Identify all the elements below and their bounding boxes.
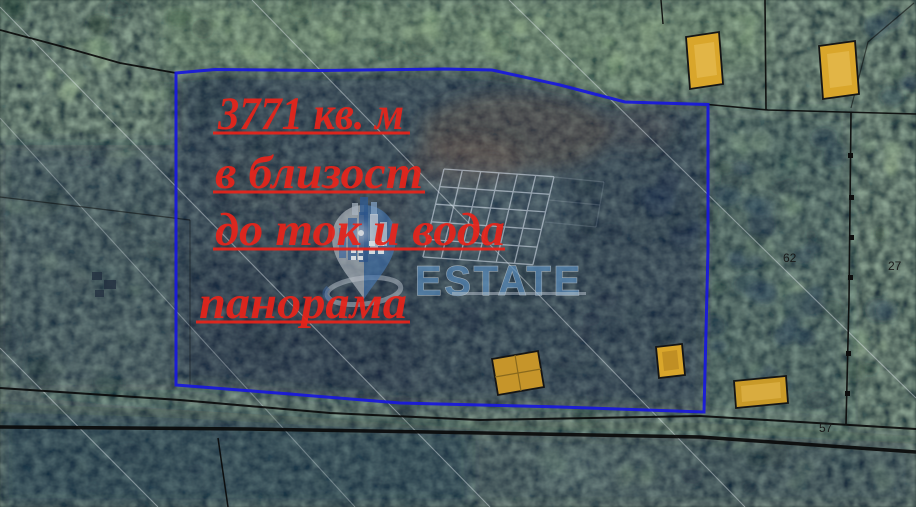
svg-text:ESTATE: ESTATE (415, 257, 583, 304)
svg-text:57: 57 (819, 421, 833, 435)
svg-text:27: 27 (888, 259, 902, 273)
svg-text:62: 62 (783, 251, 797, 265)
